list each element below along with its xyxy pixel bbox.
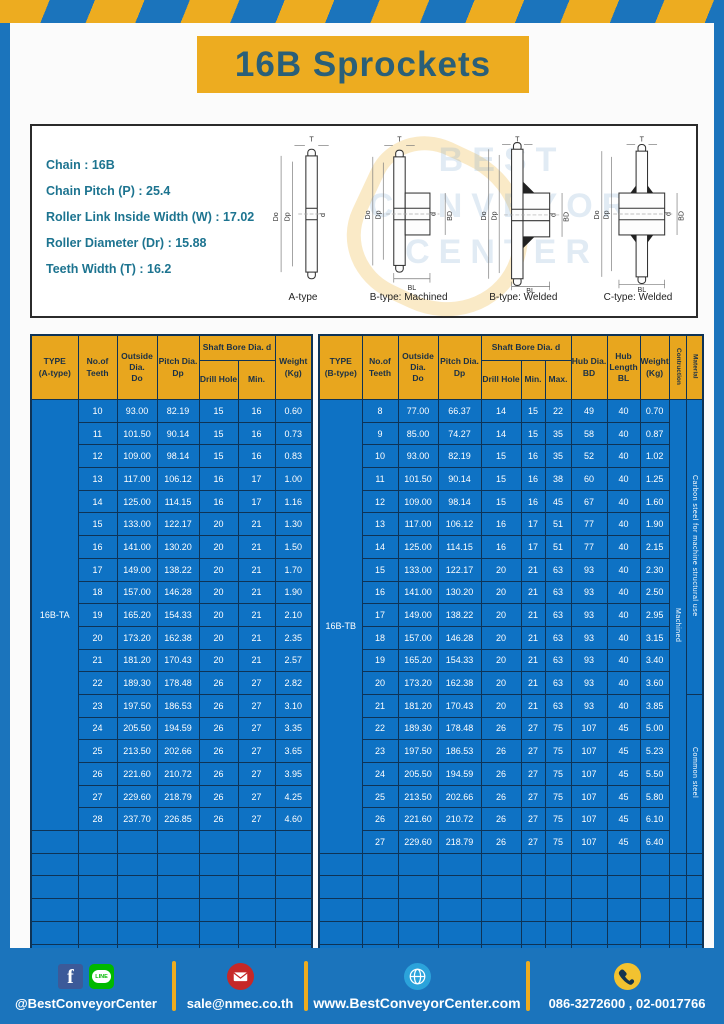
data-cell: 0.83 [275,445,312,468]
data-cell: 107 [571,740,607,763]
empty-cell [157,921,199,944]
data-cell: 93 [571,626,607,649]
data-cell: 12 [78,445,117,468]
empty-cell [398,853,438,876]
data-cell: 157.00 [398,626,438,649]
empty-row [319,876,703,899]
diagram-a-type: T Do Dp d A-type [260,134,346,310]
data-cell: 20 [199,604,238,627]
spec-label: Chain [46,158,81,172]
data-cell: 21 [521,649,545,672]
data-cell: 27 [521,785,545,808]
data-cell: 28 [78,808,117,831]
column-header: Hub Length BL [607,335,640,400]
data-cell: 117.00 [398,513,438,536]
data-cell: 82.19 [438,445,481,468]
data-cell: 1.30 [275,513,312,536]
construction-cell: Machined [669,400,686,854]
data-cell: 1.60 [640,490,669,513]
data-cell: 3.95 [275,763,312,786]
data-cell: 66.37 [438,400,481,423]
data-cell: 27 [78,785,117,808]
data-cell: 45 [607,763,640,786]
dim-t: T [640,136,645,144]
data-cell: 197.50 [117,694,157,717]
data-cell: 12 [362,490,398,513]
data-cell: 27 [238,785,275,808]
data-cell: 25 [78,740,117,763]
empty-cell [78,899,117,922]
diagram-c-welded: T Do Dp d [586,134,690,310]
dim-bl: BL [407,284,416,292]
data-cell: 2.57 [275,649,312,672]
spec-line: Roller Diameter (Dr) : 15.88 [46,230,254,256]
data-cell: 22 [78,672,117,695]
empty-cell [362,899,398,922]
empty-cell [640,899,669,922]
data-cell: 2.50 [640,581,669,604]
empty-cell [669,921,686,944]
data-cell: 146.28 [438,626,481,649]
data-cell: 21 [238,513,275,536]
empty-cell [669,876,686,899]
empty-cell [438,853,481,876]
data-cell: 40 [607,422,640,445]
empty-cell [438,899,481,922]
table-row: 27229.60218.79262775107456.40 [319,831,703,854]
empty-cell [362,921,398,944]
data-cell: 1.50 [275,536,312,559]
data-cell: 20 [481,626,521,649]
data-cell: 21 [238,581,275,604]
data-cell: 11 [362,468,398,491]
table-a-type: TYPE (A-type)No.of TeethOutside Dia. DoP… [30,334,313,968]
data-cell: 51 [545,513,571,536]
data-cell: 20 [481,649,521,672]
empty-cell [481,899,521,922]
footer-phone: 086-3272600 , 02-0017766 [530,948,724,1024]
type-cell: 16B-TB [319,400,362,854]
data-cell: 101.50 [117,422,157,445]
data-cell: 90.14 [438,468,481,491]
data-cell: 63 [545,694,571,717]
data-cell: 77.00 [398,400,438,423]
empty-cell [571,899,607,922]
data-cell: 213.50 [117,740,157,763]
sprocket-b-welded-drawing: T Do Dp d BD [471,134,575,294]
data-cell: 26 [199,717,238,740]
column-subheader: Drill Hole [199,361,238,400]
data-cell: 21 [78,649,117,672]
data-cell: 186.53 [157,694,199,717]
empty-cell [545,876,571,899]
data-cell: 26 [481,763,521,786]
data-cell: 21 [238,558,275,581]
spec-value: 16B [92,158,115,172]
data-cell: 210.72 [438,808,481,831]
data-cell: 75 [545,785,571,808]
empty-cell [199,899,238,922]
spec-lines: Chain : 16B Chain Pitch (P) : 25.4 Rolle… [46,152,254,282]
data-cell: 93 [571,604,607,627]
data-cell: 27 [238,717,275,740]
data-cell: 40 [607,490,640,513]
column-header: TYPE (B-type) [319,335,362,400]
data-cell: 213.50 [398,785,438,808]
dim-d: d [664,212,672,216]
line-icon: LINE [89,964,114,989]
dim-bd: BD [678,211,686,221]
data-cell: 3.60 [640,672,669,695]
material-cell: Carbon steel for machine structural use [686,400,703,695]
column-group-header: Shaft Bore Dia. d [199,335,275,361]
table-row: 26221.60210.72262775107456.10 [319,808,703,831]
spec-table-a-type: TYPE (A-type)No.of TeethOutside Dia. DoP… [30,334,313,968]
table-row: 16141.00130.2020216393402.50 [319,581,703,604]
table-row: 13117.00106.1216175177401.90 [319,513,703,536]
data-cell: 26 [199,808,238,831]
empty-row [319,921,703,944]
empty-cell [521,876,545,899]
data-cell: 38 [545,468,571,491]
data-cell: 141.00 [117,536,157,559]
spec-value: 17.02 [223,210,254,224]
data-cell: 15 [362,558,398,581]
empty-cell [545,899,571,922]
data-cell: 122.17 [157,513,199,536]
data-cell: 1.00 [275,468,312,491]
empty-cell [686,853,703,876]
data-cell: 93 [571,649,607,672]
data-cell: 45 [607,808,640,831]
empty-cell [521,853,545,876]
empty-cell [31,831,78,854]
data-cell: 21 [238,626,275,649]
table-row: 18157.00146.2820216393403.15 [319,626,703,649]
empty-cell [275,831,312,854]
dim-dp: Dp [602,210,610,219]
data-cell: 138.22 [438,604,481,627]
diagram-b-machined: T Do Dp d BD BL [357,134,461,310]
empty-row [31,831,312,854]
data-cell: 189.30 [398,717,438,740]
page-title: 16B Sprockets [235,45,491,85]
data-cell: 5.23 [640,740,669,763]
data-cell: 26 [78,763,117,786]
data-cell: 2.30 [640,558,669,581]
table-row: 16B-TB877.0066.3714152249400.70MachinedC… [319,400,703,423]
data-cell: 18 [362,626,398,649]
data-cell: 27 [238,694,275,717]
data-cell: 114.15 [157,490,199,513]
empty-cell [319,853,362,876]
data-cell: 2.15 [640,536,669,559]
spec-line: Chain Pitch (P) : 25.4 [46,178,254,204]
dim-bd: BD [446,211,454,221]
data-cell: 16 [521,445,545,468]
data-cell: 49 [571,400,607,423]
data-cell: 27 [238,808,275,831]
data-cell: 75 [545,740,571,763]
data-cell: 40 [607,468,640,491]
data-cell: 15 [521,422,545,445]
table-row: 14125.00114.1516175177402.15 [319,536,703,559]
empty-cell [78,876,117,899]
line-glyph: LINE [95,974,108,980]
data-cell: 15 [481,445,521,468]
diagram-b-welded: T Do Dp d BD [471,134,575,310]
data-cell: 16 [238,445,275,468]
data-cell: 15 [199,400,238,423]
data-cell: 74.27 [438,422,481,445]
empty-cell [640,876,669,899]
empty-cell [157,876,199,899]
data-cell: 45 [607,831,640,854]
empty-cell [607,921,640,944]
table-row: 12109.0098.1415164567401.60 [319,490,703,513]
dim-dp: Dp [491,211,499,220]
empty-row [31,921,312,944]
empty-cell [686,876,703,899]
data-cell: 40 [607,513,640,536]
data-cell: 20 [199,513,238,536]
data-cell: 101.50 [398,468,438,491]
data-cell: 20 [481,581,521,604]
data-cell: 202.66 [438,785,481,808]
data-cell: 14 [481,400,521,423]
table-row: 23197.50186.53262775107455.23 [319,740,703,763]
data-cell: 20 [78,626,117,649]
data-cell: 141.00 [398,581,438,604]
data-cell: 16 [481,513,521,536]
diagram-label: B-type: Machined [370,292,448,303]
table-row: 11101.5090.1415163860401.25 [319,468,703,491]
data-cell: 194.59 [157,717,199,740]
empty-row [319,899,703,922]
data-cell: 16 [238,400,275,423]
column-header: No.of Teeth [362,335,398,400]
dim-dp: Dp [284,212,292,221]
diagram-label: C-type: Welded [604,292,673,303]
data-cell: 154.33 [157,604,199,627]
empty-cell [481,921,521,944]
mail-icon [227,963,254,990]
data-cell: 63 [545,604,571,627]
data-cell: 26 [199,785,238,808]
empty-cell [571,876,607,899]
data-cell: 106.12 [438,513,481,536]
empty-cell [199,876,238,899]
data-cell: 40 [607,400,640,423]
data-cell: 27 [521,763,545,786]
phone-numbers: 086-3272600 , 02-0017766 [549,996,706,1011]
empty-cell [640,853,669,876]
data-cell: 3.15 [640,626,669,649]
data-cell: 194.59 [438,763,481,786]
data-cell: 16 [199,468,238,491]
data-cell: 5.80 [640,785,669,808]
empty-row [319,853,703,876]
empty-cell [438,876,481,899]
data-cell: 22 [362,717,398,740]
data-cell: 19 [78,604,117,627]
website-url: www.BestConveyorCenter.com [313,995,520,1011]
data-cell: 93 [571,672,607,695]
data-cell: 45 [607,740,640,763]
empty-cell [117,899,157,922]
data-cell: 6.10 [640,808,669,831]
data-cell: 16 [521,490,545,513]
data-cell: 67 [571,490,607,513]
data-cell: 21 [521,604,545,627]
data-cell: 10 [78,400,117,423]
data-cell: 21 [362,694,398,717]
sprocket-b-machined-drawing: T Do Dp d BD BL [357,134,461,294]
data-cell: 2.95 [640,604,669,627]
empty-row [31,876,312,899]
table-row: 1093.0082.1915163552401.02 [319,445,703,468]
empty-row [31,853,312,876]
dim-t: T [309,136,314,144]
data-cell: 23 [78,694,117,717]
column-group-header: Shaft Bore Dia. d [481,335,571,361]
spec-value: 25.4 [146,184,170,198]
empty-cell [238,899,275,922]
type-cell: 16B-TA [31,400,78,831]
data-cell: 20 [481,694,521,717]
data-cell: 162.38 [438,672,481,695]
dim-do: Do [272,212,280,221]
empty-cell [199,921,238,944]
empty-cell [117,876,157,899]
data-cell: 20 [199,626,238,649]
data-cell: 26 [481,785,521,808]
data-cell: 18 [78,581,117,604]
data-cell: 114.15 [438,536,481,559]
data-cell: 15 [481,468,521,491]
data-cell: 93 [571,581,607,604]
data-cell: 1.16 [275,490,312,513]
data-cell: 63 [545,672,571,695]
data-cell: 107 [571,763,607,786]
empty-cell [521,921,545,944]
dim-bd: BD [563,212,571,222]
table-row: 20173.20162.3820216393403.60 [319,672,703,695]
empty-cell [31,899,78,922]
data-cell: 125.00 [398,536,438,559]
data-cell: 58 [571,422,607,445]
data-cell: 20 [481,672,521,695]
data-cell: 117.00 [117,468,157,491]
empty-cell [669,899,686,922]
data-cell: 178.48 [438,717,481,740]
data-cell: 40 [607,581,640,604]
data-cell: 133.00 [117,513,157,536]
data-cell: 15 [481,490,521,513]
spec-label: Roller Diameter (Dr) [46,236,164,250]
data-cell: 21 [238,536,275,559]
data-cell: 20 [362,672,398,695]
dim-do: Do [480,211,488,220]
empty-cell [481,876,521,899]
column-header: Outside Dia. Do [398,335,438,400]
data-cell: 15 [521,400,545,423]
data-cell: 13 [362,513,398,536]
data-cell: 149.00 [117,558,157,581]
data-cell: 189.30 [117,672,157,695]
data-cell: 107 [571,717,607,740]
data-cell: 20 [199,581,238,604]
spec-label: Roller Link Inside Width (W) [46,210,212,224]
data-cell: 14 [481,422,521,445]
data-cell: 24 [78,717,117,740]
empty-cell [275,921,312,944]
data-cell: 16 [521,468,545,491]
empty-cell [238,876,275,899]
data-cell: 27 [362,831,398,854]
data-cell: 26 [199,740,238,763]
empty-cell [521,899,545,922]
column-header: Weight (Kg) [275,335,312,400]
column-header: Outside Dia. Do [117,335,157,400]
data-cell: 3.10 [275,694,312,717]
data-cell: 133.00 [398,558,438,581]
empty-cell [362,876,398,899]
footer-website: www.BestConveyorCenter.com [308,948,526,1024]
empty-cell [398,876,438,899]
data-cell: 8 [362,400,398,423]
title-banner: 16B Sprockets [197,36,529,93]
footer-contact-bar: f LINE @BestConveyorCenter sale@nmec.co.… [0,948,724,1024]
data-cell: 181.20 [117,649,157,672]
data-cell: 10 [362,445,398,468]
column-header-vertical: Material [686,335,703,400]
data-cell: 1.70 [275,558,312,581]
data-cell: 93 [571,558,607,581]
data-cell: 93 [571,694,607,717]
sprocket-a-drawing: T Do Dp d [260,134,346,294]
data-cell: 40 [607,536,640,559]
empty-cell [275,876,312,899]
data-cell: 19 [362,649,398,672]
table-row: 21181.20170.4320216393403.85Common steel [319,694,703,717]
empty-row [31,899,312,922]
data-cell: 1.02 [640,445,669,468]
data-cell: 205.50 [117,717,157,740]
data-cell: 2.10 [275,604,312,627]
empty-cell [319,899,362,922]
spec-line: Chain : 16B [46,152,254,178]
column-subheader: Min. [521,361,545,400]
data-cell: 173.20 [398,672,438,695]
facebook-glyph: f [67,965,74,989]
data-cell: 16 [238,422,275,445]
table-row: 15133.00122.1720216393402.30 [319,558,703,581]
data-cell: 26 [481,740,521,763]
table-row: 24205.50194.59262775107455.50 [319,763,703,786]
data-cell: 170.43 [157,649,199,672]
dim-t: T [397,136,402,144]
data-cell: 2.35 [275,626,312,649]
empty-cell [319,876,362,899]
data-cell: 52 [571,445,607,468]
data-cell: 45 [545,490,571,513]
dim-dp: Dp [374,210,382,219]
empty-cell [78,831,117,854]
column-header: Pitch Dia. Dp [438,335,481,400]
column-header: No.of Teeth [78,335,117,400]
spec-value: 16.2 [147,262,171,276]
